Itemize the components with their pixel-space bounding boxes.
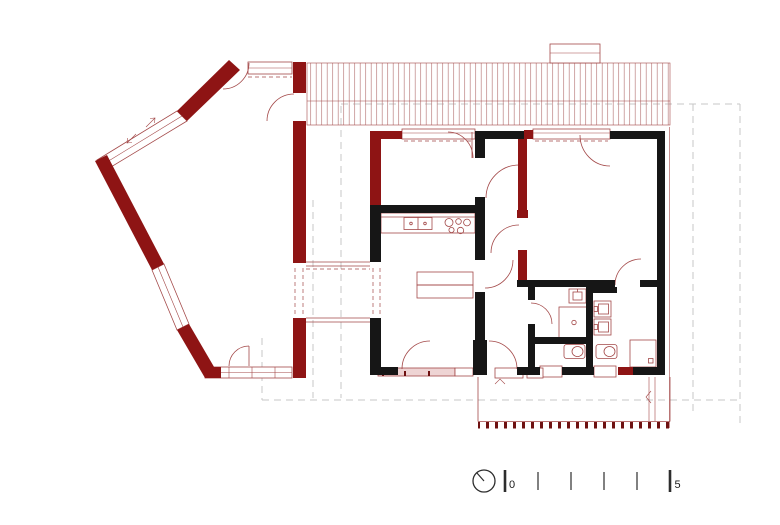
bath-sink xyxy=(594,319,611,335)
caret-mark xyxy=(495,379,505,384)
deck-board-ticks xyxy=(478,422,670,429)
house-red-walls xyxy=(370,130,633,375)
floor-plan-canvas: 0 5 xyxy=(0,0,780,525)
roof-hatch xyxy=(307,63,670,125)
chimney xyxy=(550,44,600,63)
kitchen-sink xyxy=(404,218,432,230)
floor-plan-drawing: 0 5 xyxy=(0,0,780,525)
window xyxy=(455,368,473,376)
scale-label-start: 0 xyxy=(509,479,515,491)
window xyxy=(594,366,616,377)
toilet xyxy=(564,345,585,359)
toilet xyxy=(596,345,617,359)
window xyxy=(402,129,475,139)
shower xyxy=(559,307,588,338)
bathroom-fixtures xyxy=(559,289,656,367)
cooktop xyxy=(445,219,470,234)
main-house-walls xyxy=(370,131,665,375)
scale-bar: 0 5 xyxy=(473,470,681,492)
level-mark xyxy=(646,391,651,403)
annex-wing-walls xyxy=(95,60,306,378)
kitchen-island xyxy=(417,272,473,298)
link-corridor xyxy=(295,262,380,322)
scale-label-end: 5 xyxy=(675,479,681,491)
window xyxy=(533,129,610,139)
shower xyxy=(630,340,656,367)
bath-sink xyxy=(594,301,611,317)
kitchen-fixtures xyxy=(381,213,475,298)
north-indicator-icon xyxy=(473,470,495,492)
bath-sink xyxy=(569,289,586,303)
terrace-deck xyxy=(478,377,670,429)
